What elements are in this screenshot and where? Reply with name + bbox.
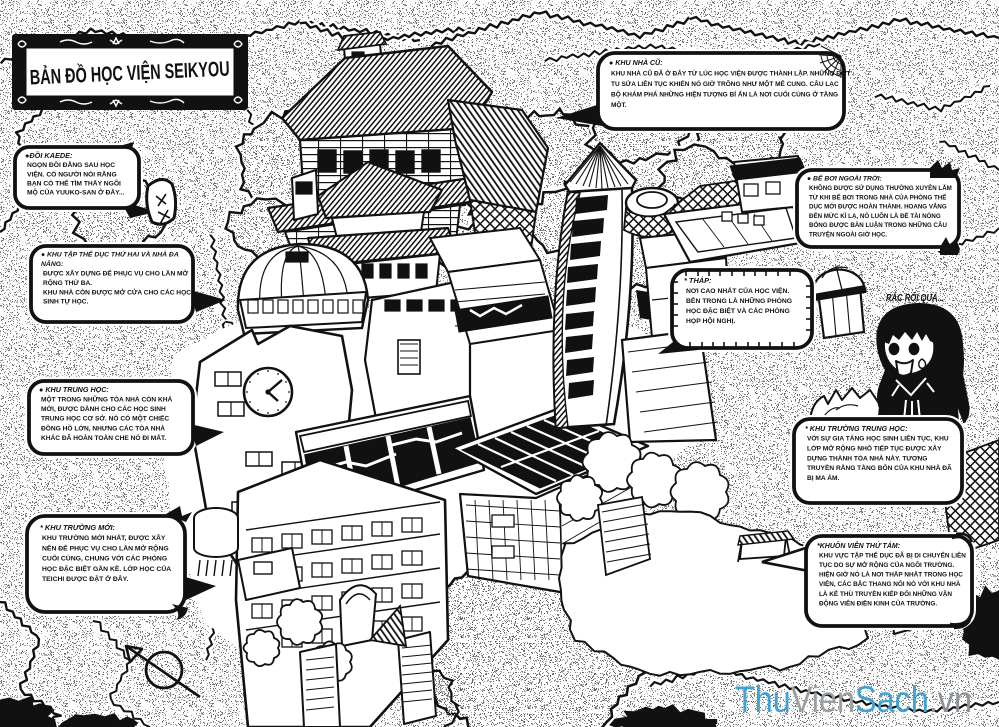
svg-text:●ĐỒI KAEDE:: ●ĐỒI KAEDE: <box>25 150 73 160</box>
svg-text:HỌC ĐẶC BIỆT VÀ CÁC PHÒNG: HỌC ĐẶC BIỆT VÀ CÁC PHÒNG <box>686 306 790 315</box>
svg-text:MỘ CỦA YUUKO-SAN Ở ĐÂY...: MỘ CỦA YUUKO-SAN Ở ĐÂY... <box>27 188 125 197</box>
svg-text:NĂNG:: NĂNG: <box>41 259 63 268</box>
svg-text:DỤC MỚI ĐƯỢC HOÀN THÀNH. HOANG: DỤC MỚI ĐƯỢC HOÀN THÀNH. HOANG VẮNG <box>809 203 947 211</box>
svg-text:TỪ KHI BỂ BƠI TRONG NHÀ CỦA PH: TỪ KHI BỂ BƠI TRONG NHÀ CỦA PHÒNG THỂ <box>809 193 946 201</box>
svg-text:VIỆN. CÓ NGƯỜI NÓI RẰNG: VIỆN. CÓ NGƯỜI NÓI RẰNG <box>27 169 117 178</box>
svg-text:BÊN TRONG LÀ NHỮNG PHÒNG: BÊN TRONG LÀ NHỮNG PHÒNG <box>686 296 792 305</box>
svg-text:KHU NHÀ CÒN ĐƯỢC MỞ CỬA CHO CÁ: KHU NHÀ CÒN ĐƯỢC MỞ CỬA CHO CÁC HỌC <box>43 287 191 296</box>
svg-text:* THÁP:: * THÁP: <box>684 276 712 285</box>
svg-text:RẮC RỐI QUÁ...: RẮC RỐI QUÁ... <box>886 291 944 304</box>
svg-text:● BỂ BƠI NGOÀI TRỜI:: ● BỂ BƠI NGOÀI TRỜI: <box>807 174 882 183</box>
svg-text:MỚI, ĐƯỢC DÀNH CHO CÁC HỌC SIN: MỚI, ĐƯỢC DÀNH CHO CÁC HỌC SINH <box>41 404 166 413</box>
svg-text:BỊ MA ÁM.: BỊ MA ÁM. <box>807 473 840 482</box>
svg-text:TRUYỆN NGOÀI GIỜ HỌC.: TRUYỆN NGOÀI GIỜ HỌC. <box>809 231 887 239</box>
svg-text:ĐẾN MỨC KÌ LẠ, NÓ LUÔN LÀ ĐỀ T: ĐẾN MỨC KÌ LẠ, NÓ LUÔN LÀ ĐỀ TÀI NÓNG <box>809 212 941 220</box>
svg-text:RỘNG THỨ BA.: RỘNG THỨ BA. <box>43 278 92 287</box>
svg-text:* KHU TRƯỜNG MỚI:: * KHU TRƯỜNG MỚI: <box>40 523 116 532</box>
svg-text:ThuVienSach.vn: ThuVienSach.vn <box>735 679 972 720</box>
svg-text:SINH TỰ HỌC.: SINH TỰ HỌC. <box>43 299 89 306</box>
svg-text:KHU VỰC TẬP THỂ DỤC ĐÃ BỊ DI C: KHU VỰC TẬP THỂ DỤC ĐÃ BỊ DI CHUYỂN LIÊN <box>819 550 966 559</box>
svg-text:VỚI SỰ GIA TĂNG HỌC SINH LIÊN: VỚI SỰ GIA TĂNG HỌC SINH LIÊN TỤC, KHU <box>807 434 949 443</box>
svg-text:● KHU TRUNG HỌC:: ● KHU TRUNG HỌC: <box>39 385 109 394</box>
svg-text:HỌP HỘI NGHỊ.: HỌP HỘI NGHỊ. <box>686 316 735 325</box>
svg-text:MỘT TRONG NHỮNG TÒA NHÀ CÒN KH: MỘT TRONG NHỮNG TÒA NHÀ CÒN KHÁ <box>41 395 172 404</box>
svg-text:TEICHI ĐƯỢC ĐẶT Ở ĐÂY.: TEICHI ĐƯỢC ĐẶT Ở ĐÂY. <box>42 574 128 583</box>
svg-text:KHÔNG ĐƯỢC SỬ DỤNG THƯỜNG XUYÊ: KHÔNG ĐƯỢC SỬ DỤNG THƯỜNG XUYÊN LẮM <box>809 184 952 192</box>
svg-text:* KHU TRƯỜNG TRUNG HỌC:: * KHU TRƯỜNG TRUNG HỌC: <box>805 424 908 433</box>
svg-text:DỰNG THÀNH TÒA NHÀ NÀY. TƯƠNG: DỰNG THÀNH TÒA NHÀ NÀY. TƯƠNG <box>807 453 927 462</box>
svg-text:TỤC DO SỰ MỞ RỘNG CỦA NGÔI TRƯ: TỤC DO SỰ MỞ RỘNG CỦA NGÔI TRƯỜNG. <box>819 560 954 569</box>
svg-text:MỘT.: MỘT. <box>611 100 627 109</box>
svg-text:KHU NHÀ CŨ ĐÃ Ở ĐÂY TỪ LÚC HỌC: KHU NHÀ CŨ ĐÃ Ở ĐÂY TỪ LÚC HỌC VIỆN ĐƯỢC… <box>611 68 851 77</box>
svg-text:● KHU TẬP THỂ DỤC THỨ HAI VÀ N: ● KHU TẬP THỂ DỤC THỨ HAI VÀ NHÀ ĐA <box>41 250 179 259</box>
svg-text:*KHUÔN VIÊN THỨ TÁM:: *KHUÔN VIÊN THỨ TÁM: <box>817 541 900 550</box>
svg-text:BỎNG ĐƯỢC BÀN LUẬN TRONG NHỮNG: BỎNG ĐƯỢC BÀN LUẬN TRONG NHỮNG CÂU <box>809 222 947 229</box>
svg-text:● KHU NHÀ CŨ:: ● KHU NHÀ CŨ: <box>609 58 663 67</box>
